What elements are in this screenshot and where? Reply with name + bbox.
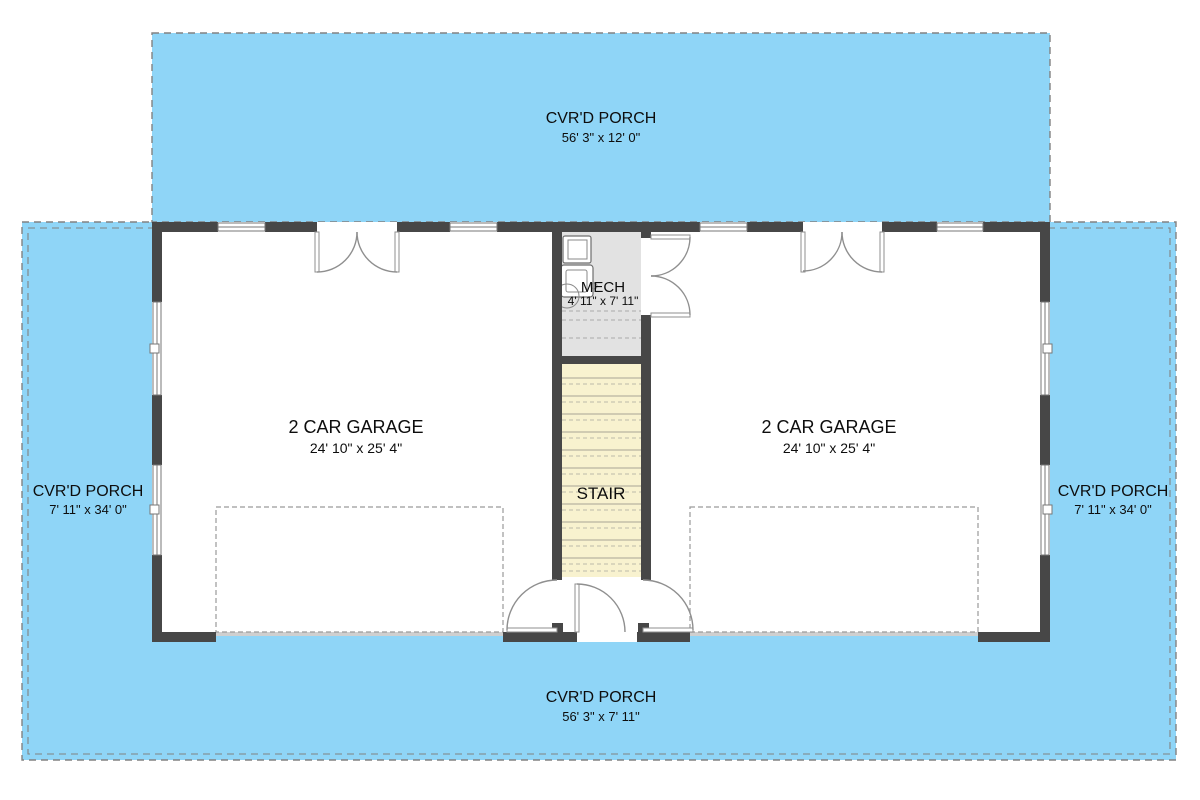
left-garage-door-opening [216, 636, 503, 642]
floor-plan-page: CVR'D PORCH 56' 3" x 12' 0" CVR'D PORCH … [0, 0, 1200, 800]
bottom-porch-label: CVR'D PORCH [546, 689, 657, 706]
top-porch-dims: 56' 3" x 12' 0" [562, 130, 641, 145]
stair-right-wall [641, 315, 651, 580]
top-porch-label: CVR'D PORCH [546, 110, 657, 127]
left-porch-label: CVR'D PORCH [33, 483, 144, 500]
window-mullion [150, 505, 159, 514]
window-icon [937, 223, 983, 231]
stair-label: STAIR [577, 484, 626, 503]
window-icon [700, 223, 747, 231]
window-mullion [150, 344, 159, 353]
floor-plan-drawing: CVR'D PORCH 56' 3" x 12' 0" CVR'D PORCH … [0, 0, 1200, 800]
right-garage-door-opening [690, 636, 978, 642]
left-garage-label: 2 CAR GARAGE [288, 417, 423, 437]
left-garage-dims: 24' 10" x 25' 4" [310, 440, 402, 456]
left-porch-dims: 7' 11" x 34' 0" [49, 502, 127, 517]
bottom-porch-dims: 56' 3" x 7' 11" [562, 709, 640, 724]
stair-landing-wall [552, 356, 651, 364]
right-porch-label: CVR'D PORCH [1058, 483, 1169, 500]
mech-dims: 4' 11" x 7' 11" [568, 294, 639, 308]
stairwell [562, 364, 641, 577]
top-porch [152, 33, 1050, 222]
right-garage-label: 2 CAR GARAGE [761, 417, 896, 437]
mech-door-jamb-top [641, 232, 651, 238]
window-mullion [1043, 344, 1052, 353]
top-porch-slab [152, 33, 1050, 222]
stair-left-wall [552, 232, 562, 580]
window-icon [218, 223, 265, 231]
window-icon [450, 223, 497, 231]
window-mullion [1043, 505, 1052, 514]
right-porch-dims: 7' 11" x 34' 0" [1074, 502, 1152, 517]
right-garage-dims: 24' 10" x 25' 4" [783, 440, 875, 456]
